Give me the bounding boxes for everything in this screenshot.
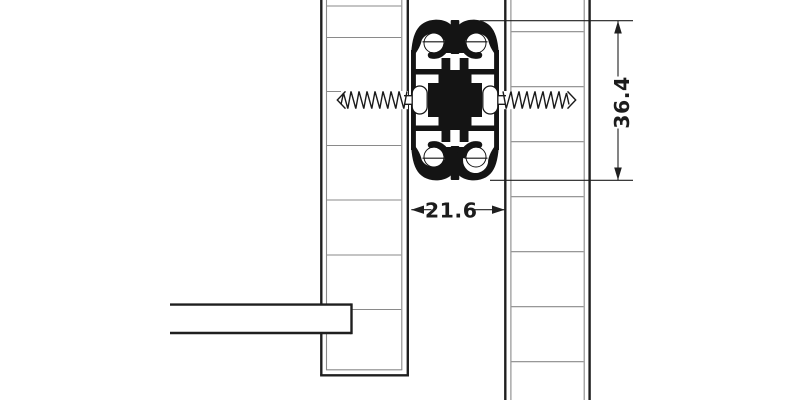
screw-left-head (412, 86, 427, 114)
right-panel (505, 0, 589, 400)
arrowhead-down (614, 168, 622, 181)
dimension-width-label: 21.6 (425, 199, 478, 223)
dimension-height-label: 36.4 (610, 76, 634, 129)
diagram-canvas: 36.4 21.6 (0, 0, 800, 400)
drawer-slide-installation-diagram: 36.4 21.6 (0, 0, 800, 400)
screw-right-head (483, 86, 498, 114)
screw-right (483, 86, 576, 114)
arrowhead-up (614, 21, 622, 34)
arrowhead-left (411, 206, 424, 214)
arrowhead-right (492, 206, 505, 214)
screw-left (337, 86, 427, 114)
right-panel-inner-lines (511, 0, 584, 400)
drawer-bottom-panel (170, 303, 352, 334)
right-panel-outline (505, 0, 589, 400)
dimension-width: 21.6 (411, 199, 504, 223)
